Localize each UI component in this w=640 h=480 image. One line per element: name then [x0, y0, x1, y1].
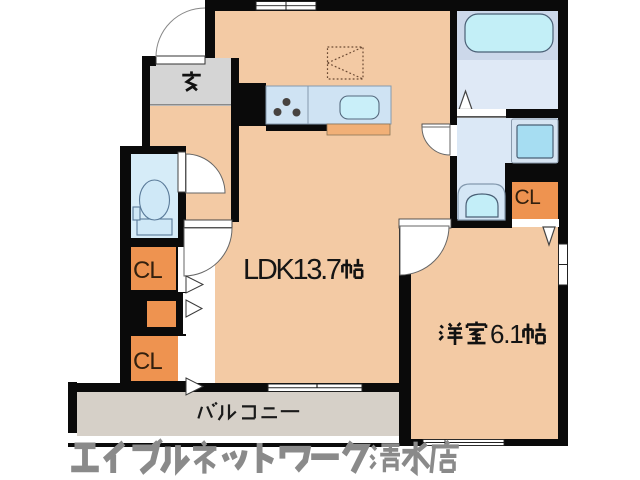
svg-text:CL: CL [133, 348, 162, 375]
svg-text:CL: CL [133, 257, 162, 284]
svg-text:LDK13.7: LDK13.7 [243, 254, 341, 286]
svg-text:6.1: 6.1 [490, 319, 523, 349]
svg-text:CL: CL [515, 186, 541, 209]
